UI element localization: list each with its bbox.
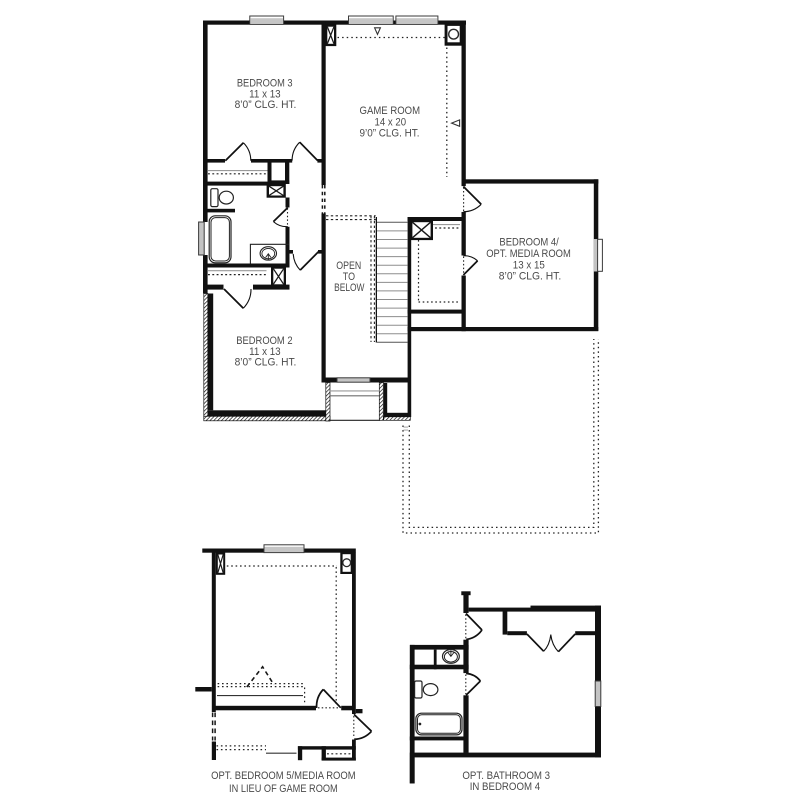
svg-text:OPT. BEDROOM 5/MEDIA ROOM: OPT. BEDROOM 5/MEDIA ROOM [211,770,356,782]
svg-text:IN BEDROOM 4: IN BEDROOM 4 [470,781,540,793]
svg-text:OPT. MEDIA ROOM: OPT. MEDIA ROOM [486,248,571,260]
svg-text:8’0” CLG. HT.: 8’0” CLG. HT. [499,270,561,282]
svg-text:9’0” CLG. HT.: 9’0” CLG. HT. [360,128,420,140]
svg-text:GAME ROOM: GAME ROOM [360,105,421,117]
svg-text:BEDROOM 3: BEDROOM 3 [237,77,293,89]
svg-text:IN LIEU OF GAME ROOM: IN LIEU OF GAME ROOM [229,783,338,795]
svg-text:OPT. BATHROOM 3: OPT. BATHROOM 3 [462,770,550,782]
svg-text:8’0” CLG. HT.: 8’0” CLG. HT. [235,357,297,369]
svg-text:BELOW: BELOW [334,282,365,294]
svg-text:BEDROOM 4/: BEDROOM 4/ [499,237,558,249]
svg-text:8’0” CLG. HT.: 8’0” CLG. HT. [235,99,297,111]
